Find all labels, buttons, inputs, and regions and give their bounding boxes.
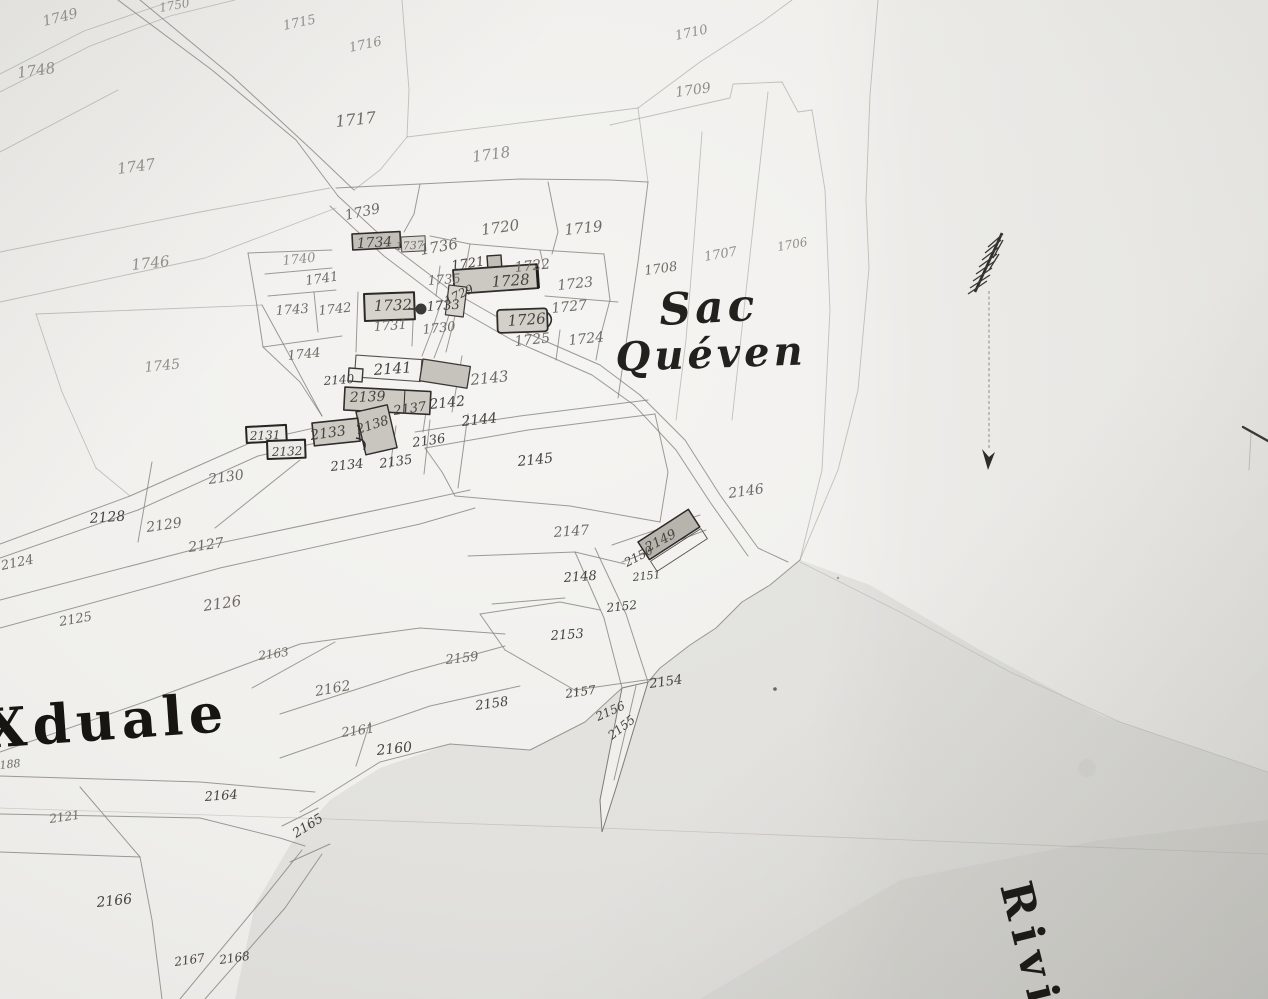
parcel-number-2159: 2159 — [444, 650, 479, 668]
parcel-number-1709: 1709 — [674, 80, 712, 101]
parcel-number-2160: 2160 — [375, 739, 413, 759]
parcel-number-2164: 2164 — [203, 788, 238, 805]
parcel-number-2158: 2158 — [473, 695, 509, 715]
north-arrow-icon — [968, 233, 1003, 470]
parcel-number-1735: 1735 — [427, 272, 461, 289]
parcel-number-1707: 1707 — [703, 244, 739, 265]
sheet-edge-mark — [1243, 427, 1268, 441]
edge-number-partial: 188 — [0, 757, 21, 772]
parcel-number-1740: 1740 — [282, 251, 316, 269]
parcel-number-2140: 2140 — [322, 372, 355, 388]
parcel-number-1716: 1716 — [348, 34, 383, 56]
parcel-number-2147: 2147 — [552, 523, 590, 542]
parcel-number-1742: 1742 — [318, 301, 352, 319]
parcel-number-2128: 2128 — [88, 509, 126, 528]
ink-speck — [773, 687, 777, 691]
parcel-number-2135: 2135 — [377, 453, 413, 473]
parcel-number-1715: 1715 — [282, 12, 317, 34]
parcel-number-2125: 2125 — [57, 609, 93, 630]
parcel-number-2126: 2126 — [201, 592, 243, 615]
parcel-number-2151: 2151 — [631, 568, 661, 584]
section-name-partial: Xduale — [0, 680, 231, 761]
parcel-number-1706: 1706 — [776, 235, 809, 254]
parcel-number-2150: 2150 — [621, 543, 656, 570]
parcel-number-1745: 1745 — [144, 356, 181, 376]
parcel-number-2152: 2152 — [605, 598, 638, 615]
parcel-number-1731: 1731 — [373, 318, 407, 335]
parcel-number-2132: 2132 — [271, 444, 303, 459]
cadastral-map-sheet: 1748174917501715171617471717171817101709… — [0, 0, 1268, 999]
parcel-number-2146: 2146 — [726, 481, 765, 502]
parcel-number-2134: 2134 — [329, 457, 364, 475]
parcel-number-2136: 2136 — [410, 432, 446, 452]
parcel-number-1749: 1749 — [41, 6, 80, 30]
parcel-number-1725: 1725 — [514, 330, 551, 350]
hamlet-name-line2: Quéven — [615, 327, 808, 381]
parcel-number-1744: 1744 — [287, 346, 321, 364]
parcel-number-1726: 1726 — [507, 309, 547, 330]
parcel-number-2142: 2142 — [428, 393, 466, 413]
ink-speck — [837, 577, 839, 579]
parcel-number-2153: 2153 — [549, 627, 584, 644]
parcel-number-2124: 2124 — [0, 552, 35, 574]
parcel-number-2145: 2145 — [516, 450, 554, 470]
parcel-number-1746: 1746 — [131, 252, 171, 274]
parcel-number-1734: 1734 — [356, 234, 392, 252]
parcel-number-2129: 2129 — [144, 515, 183, 536]
parcel-number-2167: 2167 — [172, 951, 206, 969]
parcel-number-2127: 2127 — [186, 535, 225, 556]
parcel-number-2166: 2166 — [95, 891, 133, 911]
parcel-number-2143: 2143 — [469, 367, 510, 389]
parcel-number-2141: 2141 — [372, 358, 412, 379]
parcel-number-1723: 1723 — [557, 274, 594, 294]
parcel-number-1739: 1739 — [344, 201, 382, 224]
parcel-number-1719: 1719 — [564, 217, 604, 239]
parcel-number-1730: 1730 — [422, 320, 456, 338]
hamlet-name-line1: Sac — [658, 280, 760, 336]
parcel-number-1710: 1710 — [674, 22, 709, 44]
parcel-number-1732: 1732 — [374, 296, 413, 315]
parcel-number-1747: 1747 — [116, 155, 157, 178]
parcel-number-1743: 1743 — [275, 302, 309, 319]
parcel-number-1724: 1724 — [568, 329, 605, 349]
parcel-number-2163: 2163 — [256, 645, 290, 663]
parcel-number-1717: 1717 — [334, 108, 377, 131]
parcel-number-1728: 1728 — [491, 270, 530, 291]
paper-stain — [1078, 759, 1096, 777]
parcel-number-2131: 2131 — [249, 428, 281, 443]
well-pump-symbol — [416, 304, 427, 315]
parcel-number-1741: 1741 — [304, 270, 339, 289]
building — [420, 359, 471, 388]
parcel-number-2161: 2161 — [339, 722, 375, 742]
parcel-number-1708: 1708 — [643, 260, 678, 279]
parcel-number-2157: 2157 — [563, 683, 597, 701]
parcel-number-1718: 1718 — [471, 143, 511, 166]
parcel-number-1748: 1748 — [16, 59, 56, 82]
parcel-number-2121: 2121 — [47, 808, 80, 826]
parcel-number-2162: 2162 — [313, 678, 352, 700]
river-wash — [235, 560, 1268, 999]
parcel-number-2148: 2148 — [562, 569, 597, 586]
parcel-number-1720: 1720 — [480, 216, 521, 239]
parcel-number-2144: 2144 — [460, 410, 498, 430]
map-drawing: 1748174917501715171617471717171817101709… — [0, 0, 1268, 999]
parcel-number-1750: 1750 — [158, 0, 191, 15]
parcel-number-2130: 2130 — [206, 467, 245, 488]
parcel-number-2139: 2139 — [349, 389, 386, 406]
parcel-number-1727: 1727 — [551, 297, 588, 317]
